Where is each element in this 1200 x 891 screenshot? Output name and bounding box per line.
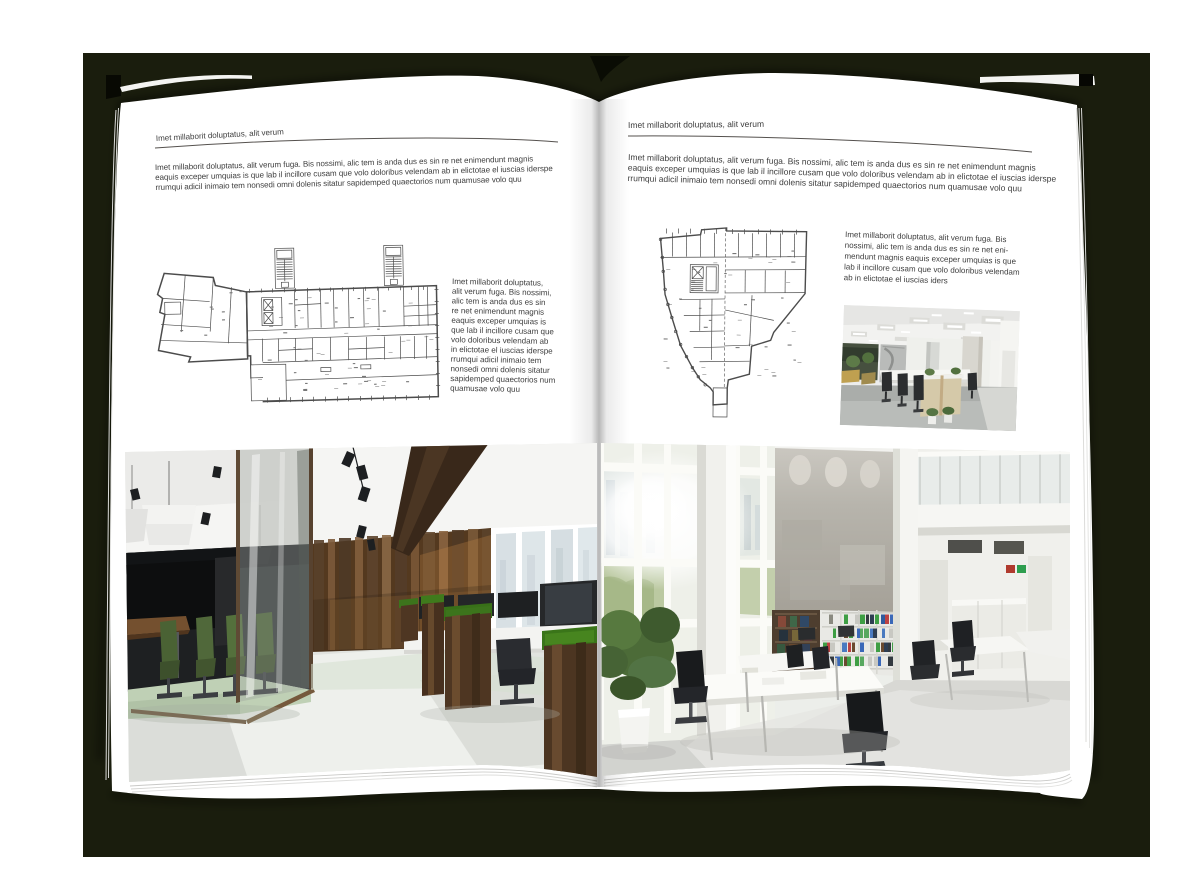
svg-text:quamusae volo quu: quamusae volo quu xyxy=(450,384,520,394)
svg-text:Imet millaborit doluptatus, al: Imet millaborit doluptatus, alit verum xyxy=(628,119,764,130)
